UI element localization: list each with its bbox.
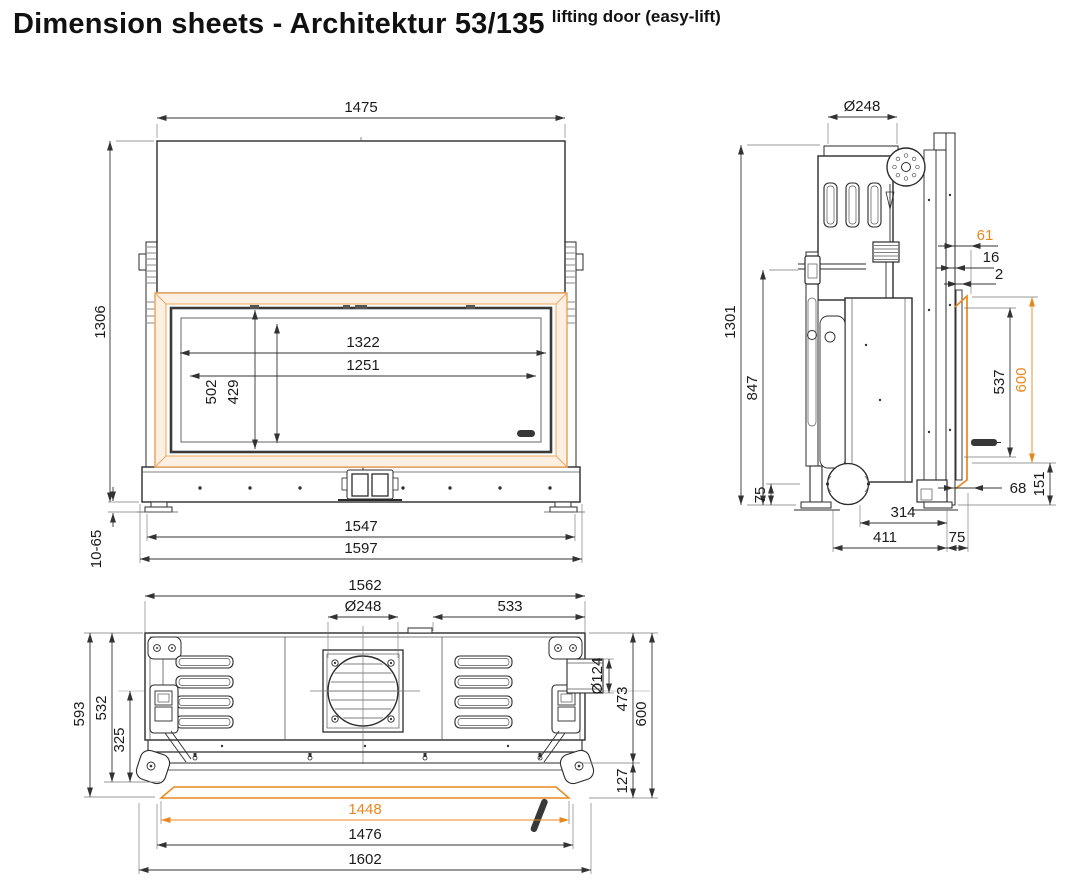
side-air-duct [826,464,870,505]
svg-text:Ø248: Ø248 [844,98,881,115]
plan-glass-front-frame [161,787,569,798]
plan-corner-tab-left [148,637,181,659]
svg-text:1597: 1597 [344,540,377,557]
svg-text:1475: 1475 [344,99,377,116]
svg-text:2: 2 [995,266,1003,283]
side-rear-column [946,133,955,505]
plan-top-tab [408,628,432,633]
svg-text:1476: 1476 [348,826,381,843]
front-hood [157,141,565,293]
plan-corner-bracket-right [558,748,596,786]
svg-text:61: 61 [977,227,994,244]
dim-front-foot-adjustment: 10-65 [88,487,143,568]
svg-text:429: 429 [225,379,242,404]
svg-text:600: 600 [1013,367,1030,392]
plan-view-geometry [118,626,650,833]
svg-text:151: 151 [1031,471,1048,496]
side-flue-collar [824,146,898,156]
dim-side-overall-height: 1301 [722,145,820,505]
svg-text:1602: 1602 [348,851,381,868]
svg-text:1562: 1562 [348,577,381,594]
side-vent-slots [824,183,881,227]
side-view: Ø248 1301 847 61 [722,98,1056,552]
plan-door-handle [530,798,549,833]
dim-plan-air-duct-diameter: Ø124 [589,658,614,695]
front-view: 1475 1306 1322 1251 502 429 [88,99,585,568]
dim-plan-front-offset: 127 [614,763,633,798]
svg-text:1306: 1306 [92,305,109,338]
side-door-glass [956,290,962,480]
svg-text:1322: 1322 [346,334,379,351]
dim-side-body-height: 847 [744,270,798,505]
dim-front-overall-height: 1306 [92,141,154,502]
side-view-geometry [794,133,1001,510]
svg-text:68: 68 [1010,480,1027,497]
dim-side-flue-diameter: Ø248 [828,98,897,144]
svg-text:10-65: 10-65 [88,530,105,568]
side-firebox [818,156,893,300]
side-lower-body [820,298,912,482]
svg-text:314: 314 [890,504,915,521]
side-screw [971,439,1001,446]
svg-text:1547: 1547 [344,518,377,535]
svg-text:532: 532 [93,695,110,720]
svg-text:533: 533 [497,598,522,615]
dim-front-base-width: 1547 [147,514,575,541]
front-right-foot [550,502,577,512]
side-lift-pulley [887,148,925,186]
svg-text:1448: 1448 [348,801,381,818]
svg-text:411: 411 [873,529,897,546]
dim-side-frame-height: 600 [972,297,1056,463]
technical-drawing: 1475 1306 1322 1251 502 429 [0,0,1069,893]
svg-text:847: 847 [744,375,761,400]
svg-text:1251: 1251 [346,357,379,374]
plan-view: 1562 Ø248 533 593 532 [71,577,658,874]
svg-text:473: 473 [614,686,631,711]
svg-text:593: 593 [71,701,88,726]
svg-text:75: 75 [949,529,966,546]
svg-text:537: 537 [991,369,1008,394]
plan-rail-screws [193,753,542,760]
dim-plan-half-depth: 325 [111,691,130,782]
svg-text:600: 600 [633,701,650,726]
front-door-handle [517,430,535,437]
dim-side-glass-height: 537 [964,308,1016,457]
svg-text:Ø124: Ø124 [589,658,606,695]
dim-plan-glass-width: 1448 [161,801,569,824]
dimension-sheet-page: Dimension sheets - Architektur 53/135lif… [0,0,1069,893]
plan-corner-bracket-left [134,748,172,786]
svg-text:75: 75 [752,487,769,504]
front-left-foot [145,502,172,512]
svg-text:16: 16 [983,249,1000,266]
svg-text:1301: 1301 [722,305,739,338]
dim-front-overall-width: 1475 [157,99,565,138]
dim-plan-front-depth: 473 [580,633,658,763]
dim-plan-flue-offset: 533 [433,598,585,631]
dim-side-duct-center-height: 75 [752,484,800,505]
svg-text:325: 325 [111,727,128,752]
plan-front-rails [148,740,582,770]
front-view-geometry [137,137,585,512]
svg-text:127: 127 [614,768,631,793]
front-right-bracket [576,254,583,270]
plan-corner-tab-right [549,637,582,659]
dim-side-plinth-height: 151 [958,463,1056,505]
svg-text:Ø248: Ø248 [345,598,382,615]
svg-text:502: 502 [203,379,220,404]
front-left-bracket [139,254,146,270]
